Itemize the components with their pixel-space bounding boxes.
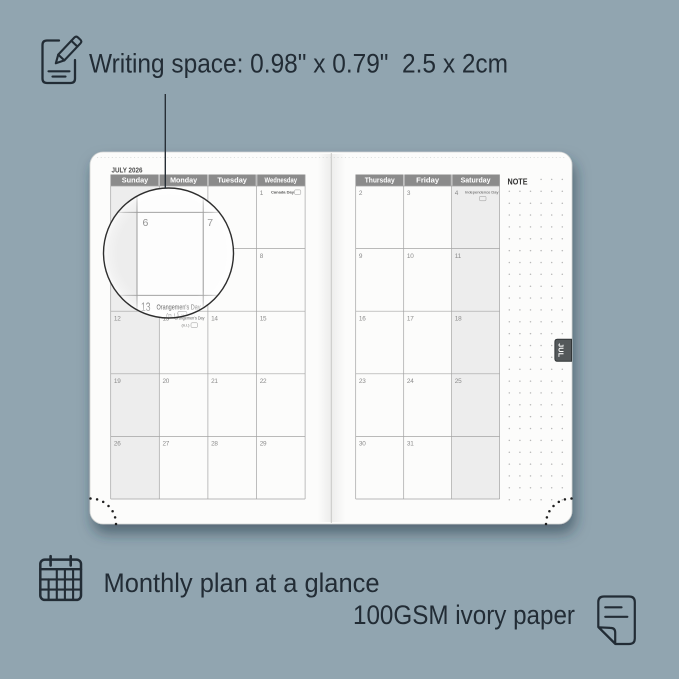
svg-text:14: 14	[211, 315, 218, 322]
svg-text:10: 10	[407, 253, 414, 260]
svg-text:12: 12	[114, 315, 121, 322]
svg-text:Sunday: Sunday	[122, 178, 149, 185]
svg-text:22: 22	[260, 378, 267, 385]
svg-text:18: 18	[455, 315, 462, 322]
svg-text:Thursday: Thursday	[365, 178, 395, 185]
svg-text:17: 17	[407, 315, 414, 322]
svg-text:NOTE: NOTE	[508, 177, 528, 187]
svg-text:Independence Day: Independence Day	[465, 190, 499, 195]
svg-text:24: 24	[407, 378, 414, 385]
svg-text:11: 11	[455, 253, 462, 260]
svg-text:100GSM ivory paper: 100GSM ivory paper	[353, 600, 575, 630]
svg-text:(n.i.): (n.i.)	[182, 323, 191, 328]
svg-text:31: 31	[407, 441, 414, 448]
svg-text:19: 19	[114, 378, 121, 385]
svg-text:Saturday: Saturday	[461, 178, 491, 185]
svg-text:27: 27	[163, 441, 170, 448]
svg-text:Wednesday: Wednesday	[265, 178, 298, 185]
svg-text:23: 23	[359, 378, 366, 385]
svg-text:26: 26	[114, 441, 121, 448]
svg-text:JULY 2026: JULY 2026	[112, 165, 143, 174]
svg-text:Canada Day: Canada Day	[271, 190, 295, 195]
svg-text:30: 30	[359, 441, 366, 448]
svg-text:29: 29	[260, 441, 267, 448]
svg-text:20: 20	[163, 378, 170, 385]
svg-text:Monday: Monday	[170, 178, 197, 185]
svg-text:Tuesday: Tuesday	[217, 178, 247, 185]
svg-text:Writing space: 0.98" x 0.79": Writing space: 0.98" x 0.79" 2.5 x 2cm	[89, 49, 508, 79]
svg-text:Monthly plan at a glance: Monthly plan at a glance	[104, 568, 380, 598]
svg-text:28: 28	[211, 441, 218, 448]
svg-text:Friday: Friday	[416, 178, 439, 185]
svg-text:21: 21	[211, 378, 218, 385]
svg-text:JUL: JUL	[557, 343, 564, 358]
svg-text:15: 15	[260, 315, 267, 322]
svg-text:25: 25	[455, 378, 462, 385]
svg-text:16: 16	[359, 315, 366, 322]
